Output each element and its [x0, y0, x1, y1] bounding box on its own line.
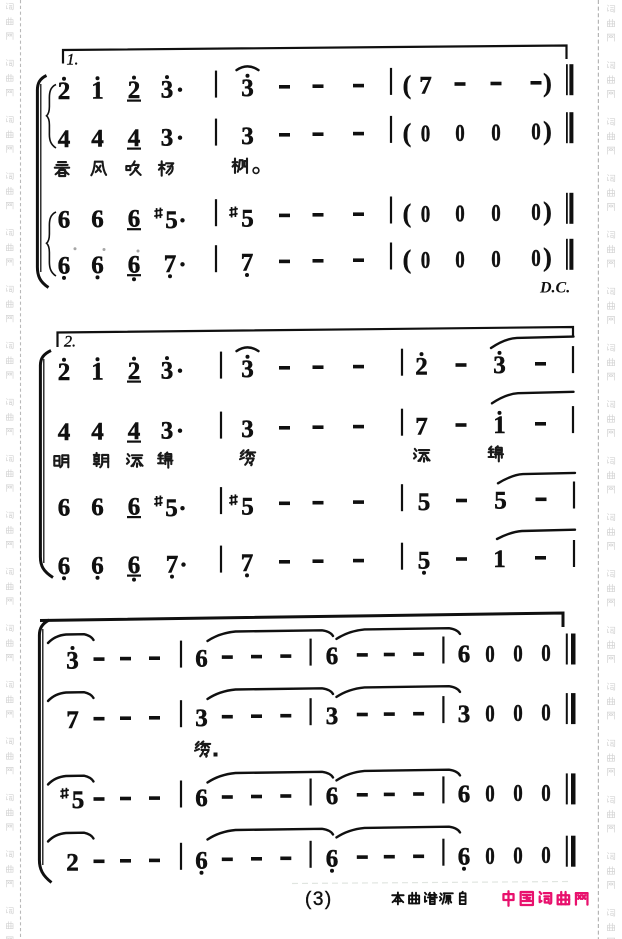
svg-text:7: 7: [241, 250, 254, 277]
svg-text:6: 6: [91, 206, 104, 233]
svg-text:0: 0: [421, 202, 431, 228]
svg-text:4: 4: [58, 419, 71, 446]
svg-text:D.C.: D.C.: [539, 280, 570, 297]
svg-text:0: 0: [491, 120, 501, 146]
svg-text:0: 0: [541, 843, 551, 869]
svg-text:(: (: [403, 119, 412, 148]
svg-text:): ): [543, 197, 552, 226]
svg-text:0: 0: [485, 782, 495, 808]
svg-text:6: 6: [458, 781, 471, 808]
svg-text:0: 0: [531, 200, 541, 226]
svg-text:0: 0: [513, 701, 523, 727]
svg-text:3: 3: [161, 417, 174, 444]
svg-text:4: 4: [58, 126, 71, 153]
svg-text:3: 3: [241, 416, 254, 443]
svg-text:0: 0: [455, 247, 465, 273]
svg-text:0: 0: [513, 781, 523, 807]
svg-text:1: 1: [493, 546, 506, 573]
svg-text:0: 0: [485, 701, 495, 727]
svg-text:(: (: [403, 71, 412, 100]
svg-text:6: 6: [326, 643, 339, 670]
svg-text:): ): [543, 117, 552, 146]
svg-text:3: 3: [326, 703, 339, 730]
svg-text:7: 7: [415, 413, 428, 440]
svg-text:1: 1: [91, 78, 104, 105]
svg-text:3: 3: [161, 76, 174, 103]
svg-text:5: 5: [165, 207, 178, 234]
svg-text:7: 7: [241, 550, 254, 577]
svg-text:6: 6: [195, 645, 208, 672]
svg-text:0: 0: [455, 121, 465, 147]
svg-text:3: 3: [241, 123, 254, 150]
svg-text:5: 5: [418, 547, 431, 574]
svg-text:0: 0: [421, 248, 431, 274]
svg-text:3: 3: [161, 124, 174, 151]
svg-text:0: 0: [455, 201, 465, 227]
svg-text:1: 1: [493, 412, 506, 439]
svg-text:0: 0: [485, 642, 495, 668]
svg-text:2: 2: [58, 359, 71, 386]
svg-text:6: 6: [58, 253, 71, 280]
svg-text:6: 6: [458, 641, 471, 668]
svg-text:(: (: [403, 199, 412, 228]
svg-text:1.: 1.: [67, 52, 79, 69]
svg-text:0: 0: [421, 121, 431, 147]
svg-text:0: 0: [541, 781, 551, 807]
svg-text:3: 3: [493, 352, 506, 379]
svg-text:0: 0: [491, 247, 501, 273]
svg-text:1: 1: [91, 359, 104, 386]
svg-text:2: 2: [415, 353, 428, 380]
svg-text:6: 6: [326, 783, 339, 810]
svg-text:7: 7: [66, 707, 79, 734]
svg-text:2: 2: [66, 850, 79, 877]
svg-text:6: 6: [58, 495, 71, 522]
svg-text:5: 5: [72, 787, 85, 814]
svg-text:7: 7: [164, 251, 177, 278]
svg-text:3: 3: [241, 356, 254, 383]
svg-text:4: 4: [91, 419, 104, 446]
svg-text:4: 4: [91, 126, 104, 153]
svg-text:5: 5: [241, 206, 254, 233]
svg-text:6: 6: [91, 494, 104, 521]
svg-text:2.: 2.: [64, 334, 76, 351]
svg-text:0: 0: [513, 844, 523, 870]
svg-text:0: 0: [513, 641, 523, 667]
svg-text:7: 7: [166, 551, 179, 578]
svg-text:0: 0: [531, 246, 541, 272]
svg-text:6: 6: [58, 553, 71, 580]
svg-text:7: 7: [419, 72, 432, 99]
svg-text:3: 3: [66, 647, 79, 674]
svg-text:6: 6: [326, 845, 339, 872]
svg-text:(: (: [403, 245, 412, 274]
svg-text:0: 0: [485, 844, 495, 870]
svg-text:6: 6: [195, 785, 208, 812]
svg-text:5: 5: [165, 495, 178, 522]
svg-text:): ): [543, 243, 552, 272]
svg-text:(3): (3): [305, 889, 333, 910]
svg-text:6: 6: [91, 252, 104, 279]
svg-text:0: 0: [541, 701, 551, 727]
svg-text:5: 5: [418, 489, 431, 516]
svg-text:0: 0: [491, 201, 501, 227]
svg-text:6: 6: [195, 848, 208, 875]
svg-text:3: 3: [161, 357, 174, 384]
svg-text:6: 6: [58, 207, 71, 234]
svg-text:2: 2: [58, 78, 71, 105]
svg-text:3: 3: [458, 701, 471, 728]
svg-text:0: 0: [541, 641, 551, 667]
svg-text:6: 6: [91, 553, 104, 580]
svg-text:6: 6: [458, 843, 471, 870]
svg-text:5: 5: [241, 494, 254, 521]
svg-text:0: 0: [531, 120, 541, 146]
svg-text:): ): [543, 69, 552, 98]
svg-text:3: 3: [195, 705, 208, 732]
svg-text:3: 3: [241, 75, 254, 102]
svg-text:5: 5: [494, 488, 507, 515]
